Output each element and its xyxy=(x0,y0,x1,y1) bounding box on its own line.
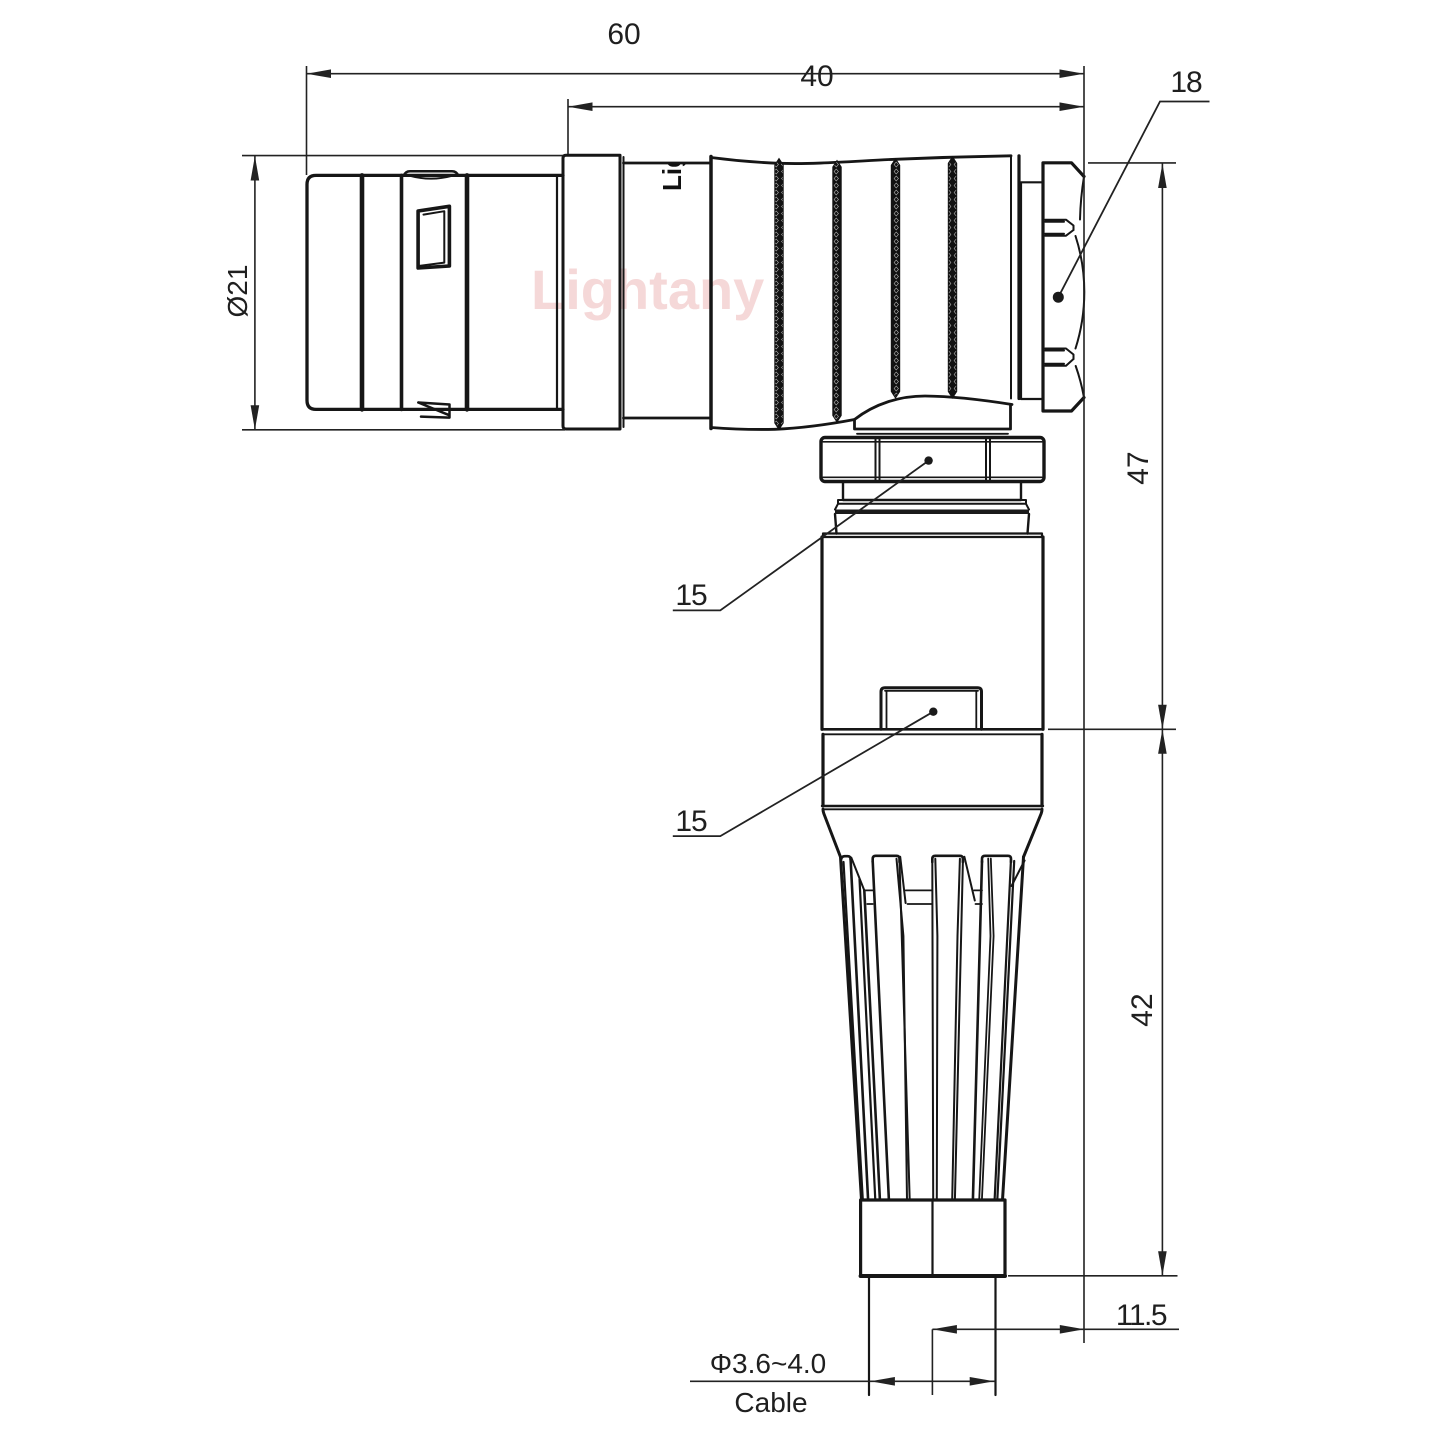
svg-text:40: 40 xyxy=(800,60,833,93)
svg-text:42: 42 xyxy=(1126,993,1159,1026)
svg-text:60: 60 xyxy=(607,18,640,51)
svg-text:15: 15 xyxy=(675,805,707,838)
svg-text:Cable: Cable xyxy=(734,1387,807,1418)
svg-text:47: 47 xyxy=(1122,451,1155,484)
svg-text:Ø21: Ø21 xyxy=(222,265,253,318)
svg-text:18: 18 xyxy=(1170,66,1202,99)
svg-text:15: 15 xyxy=(675,579,707,612)
svg-text:Φ3.6~4.0: Φ3.6~4.0 xyxy=(710,1348,827,1379)
svg-text:11.5: 11.5 xyxy=(1116,1299,1167,1332)
svg-text:Lightany: Lightany xyxy=(531,258,764,321)
